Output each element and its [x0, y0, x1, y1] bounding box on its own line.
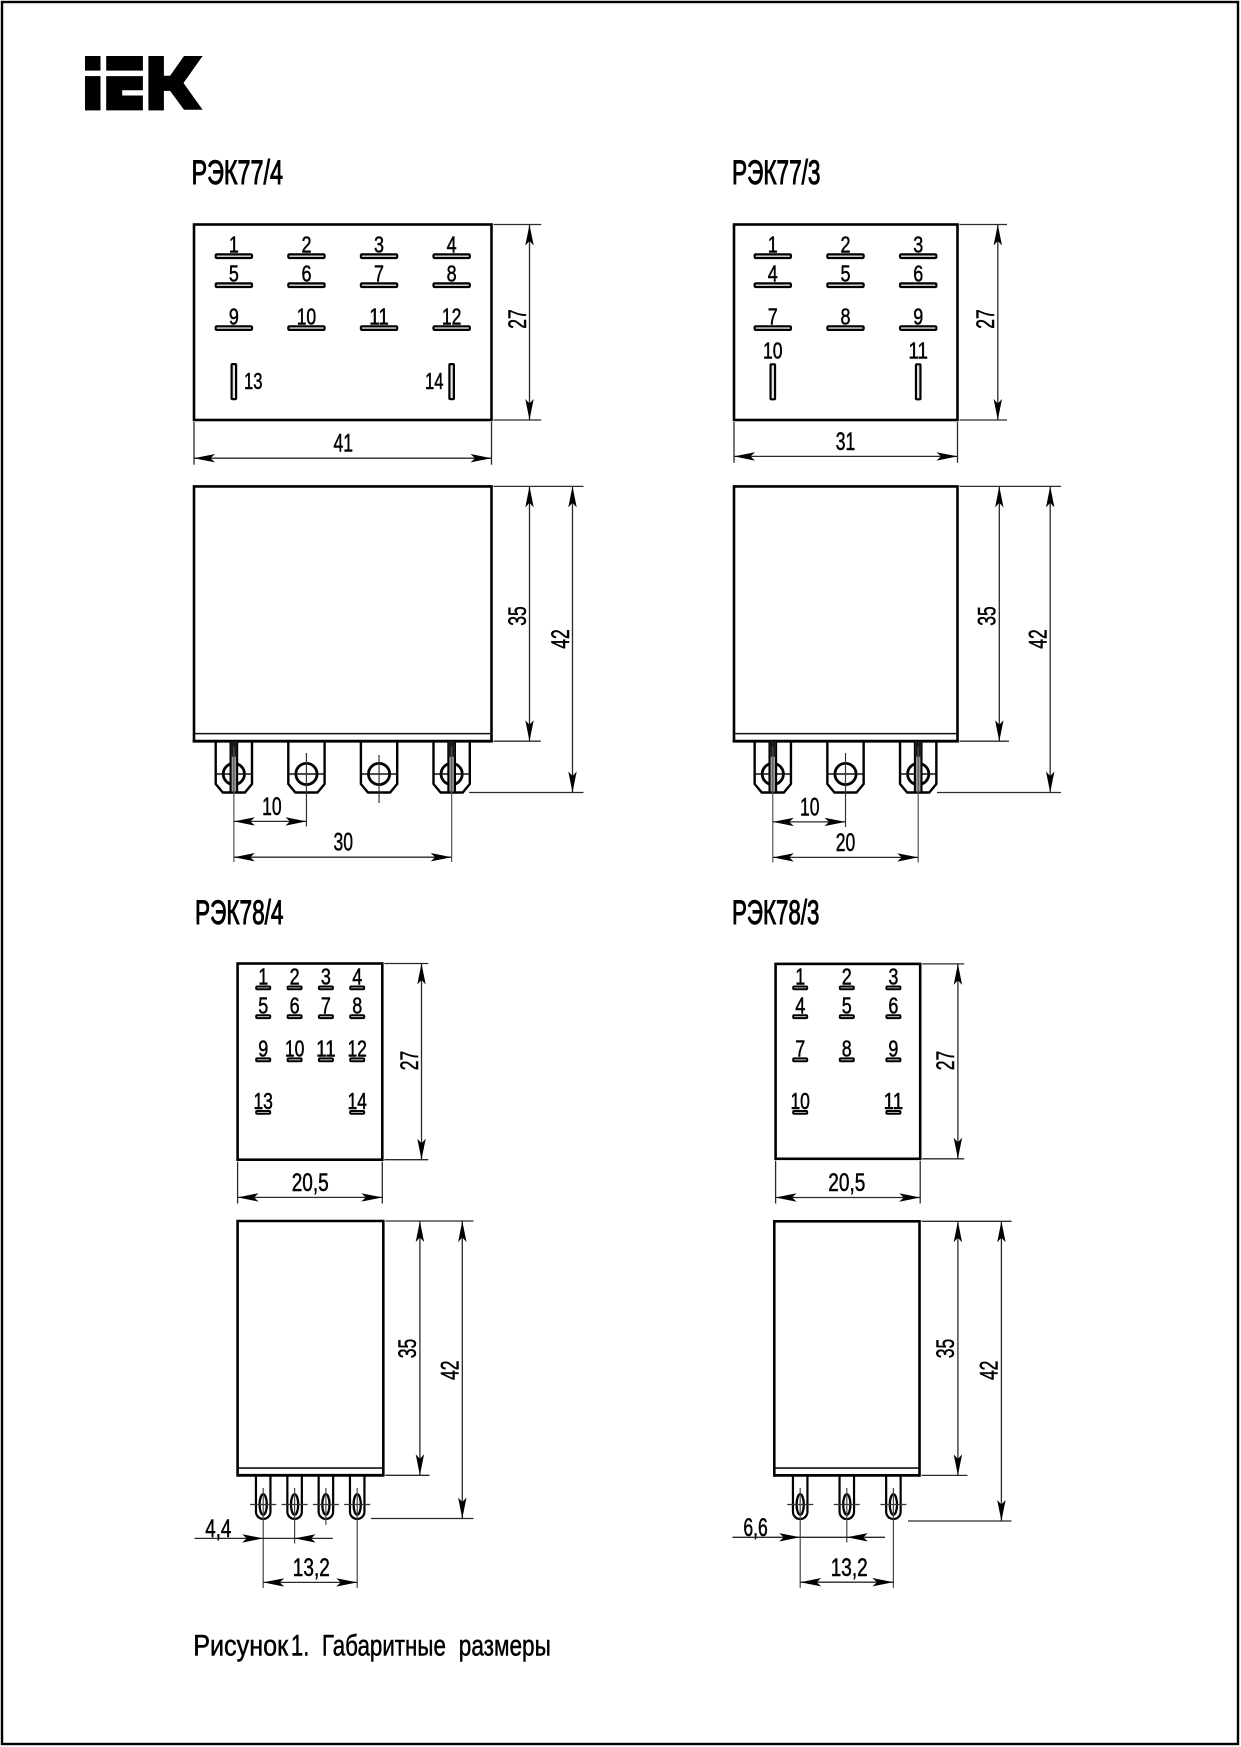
- svg-text:35: 35: [933, 1339, 960, 1359]
- svg-text:35: 35: [505, 606, 532, 626]
- svg-text:13,2: 13,2: [831, 1555, 868, 1582]
- svg-text:1.: 1.: [291, 1630, 310, 1663]
- svg-text:10: 10: [800, 795, 820, 822]
- svg-text:4,4: 4,4: [205, 1516, 231, 1543]
- svg-text:27: 27: [505, 309, 532, 329]
- svg-text:41: 41: [334, 431, 354, 458]
- svg-text:20,5: 20,5: [292, 1170, 329, 1197]
- svg-text:27: 27: [933, 1051, 960, 1071]
- svg-text:РЭК78/4: РЭК78/4: [195, 894, 284, 932]
- svg-text:Рисунок: Рисунок: [193, 1630, 289, 1663]
- svg-text:РЭК77/4: РЭК77/4: [192, 154, 284, 192]
- svg-text:35: 35: [975, 606, 1002, 626]
- svg-text:РЭК78/3: РЭК78/3: [732, 894, 820, 932]
- svg-text:42: 42: [438, 1361, 465, 1381]
- svg-text:20,5: 20,5: [828, 1170, 865, 1197]
- svg-text:Габаритные: Габаритные: [322, 1630, 446, 1663]
- svg-text:10: 10: [763, 338, 783, 364]
- svg-text:размеры: размеры: [459, 1630, 551, 1663]
- svg-text:13,2: 13,2: [293, 1555, 330, 1582]
- svg-text:31: 31: [836, 429, 856, 456]
- svg-text:20: 20: [836, 830, 856, 857]
- svg-text:27: 27: [973, 309, 1000, 329]
- svg-text:14: 14: [425, 368, 444, 394]
- svg-text:РЭК77/3: РЭК77/3: [732, 154, 821, 192]
- svg-text:27: 27: [397, 1051, 424, 1071]
- svg-text:6,6: 6,6: [743, 1515, 768, 1542]
- svg-text:42: 42: [1026, 629, 1053, 649]
- svg-text:13: 13: [244, 368, 263, 394]
- svg-text:11: 11: [908, 338, 928, 364]
- svg-text:35: 35: [395, 1339, 422, 1359]
- svg-text:42: 42: [977, 1361, 1004, 1381]
- svg-text:30: 30: [334, 830, 354, 857]
- svg-text:42: 42: [548, 629, 575, 649]
- svg-text:10: 10: [262, 794, 282, 821]
